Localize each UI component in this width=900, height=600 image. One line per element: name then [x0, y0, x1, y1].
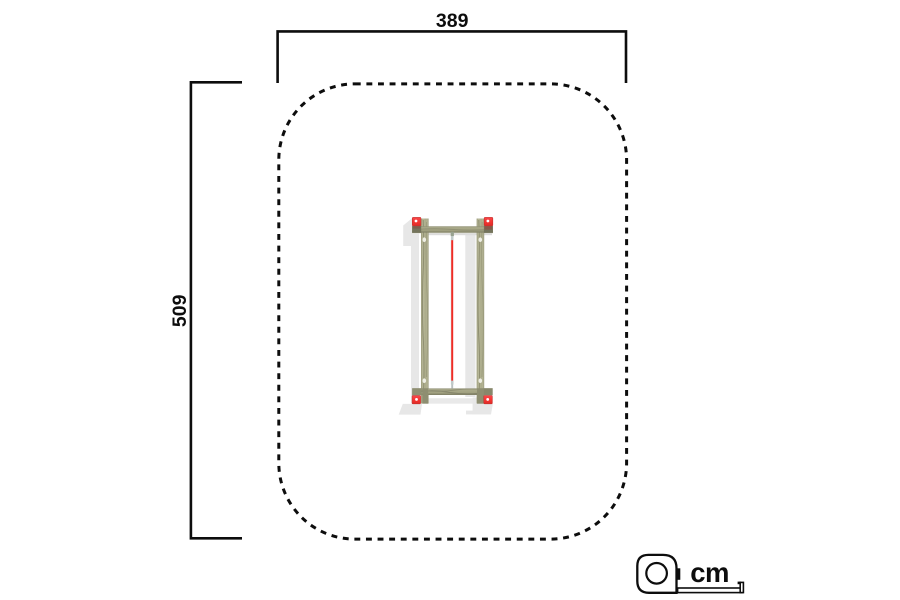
- svg-text:cm: cm: [690, 557, 729, 588]
- svg-text:389: 389: [436, 10, 469, 32]
- svg-text:509: 509: [169, 294, 191, 327]
